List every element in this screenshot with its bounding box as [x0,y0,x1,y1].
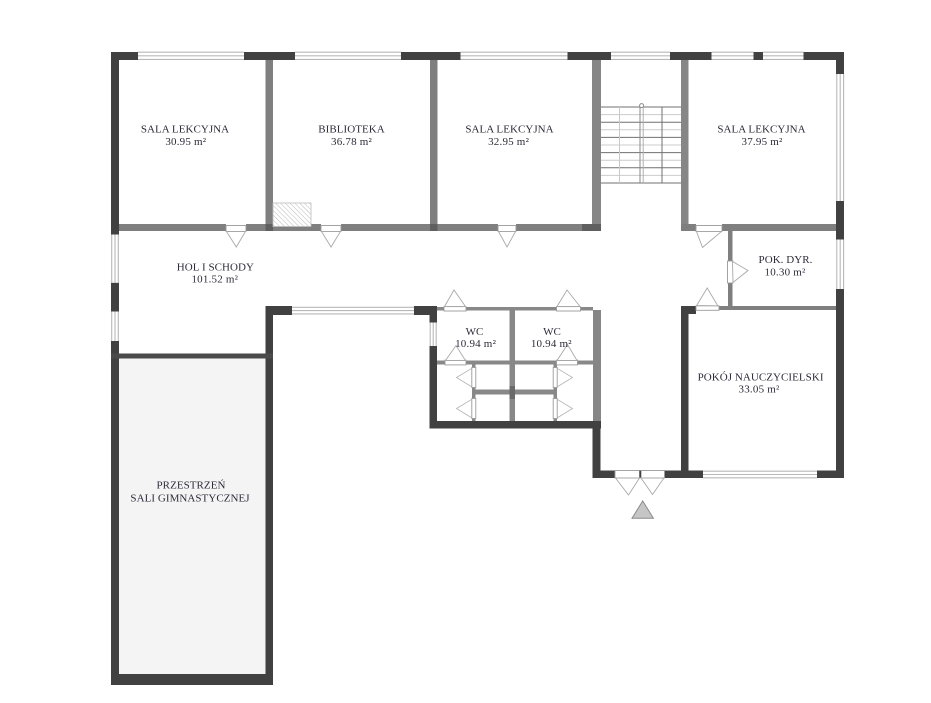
svg-text:SALI GIMNASTYCZNEJ: SALI GIMNASTYCZNEJ [130,492,250,504]
svg-text:SALA LEKCYJNA: SALA LEKCYJNA [465,123,553,135]
svg-text:10.94 m²: 10.94 m² [455,338,496,350]
svg-text:BIBLIOTEKA: BIBLIOTEKA [318,123,385,135]
svg-text:32.95 m²: 32.95 m² [488,136,529,148]
svg-text:101.52 m²: 101.52 m² [191,274,238,286]
svg-text:HOL I SCHODY: HOL I SCHODY [177,261,254,273]
svg-text:30.95 m²: 30.95 m² [165,136,206,148]
svg-text:POKÓJ NAUCZYCIELSKI: POKÓJ NAUCZYCIELSKI [698,372,824,384]
svg-text:37.95 m²: 37.95 m² [742,136,783,148]
svg-text:PRZESTRZEŃ: PRZESTRZEŃ [157,479,226,491]
svg-text:10.94 m²: 10.94 m² [531,338,572,350]
svg-text:33.05 m²: 33.05 m² [739,384,780,396]
svg-text:SALA LEKCYJNA: SALA LEKCYJNA [141,123,229,135]
svg-text:POK. DYR.: POK. DYR. [759,254,813,266]
svg-text:WC: WC [543,326,561,338]
svg-text:SALA LEKCYJNA: SALA LEKCYJNA [717,123,805,135]
svg-text:WC: WC [466,326,484,338]
svg-text:36.78 m²: 36.78 m² [331,136,372,148]
svg-text:10.30 m²: 10.30 m² [765,267,806,279]
